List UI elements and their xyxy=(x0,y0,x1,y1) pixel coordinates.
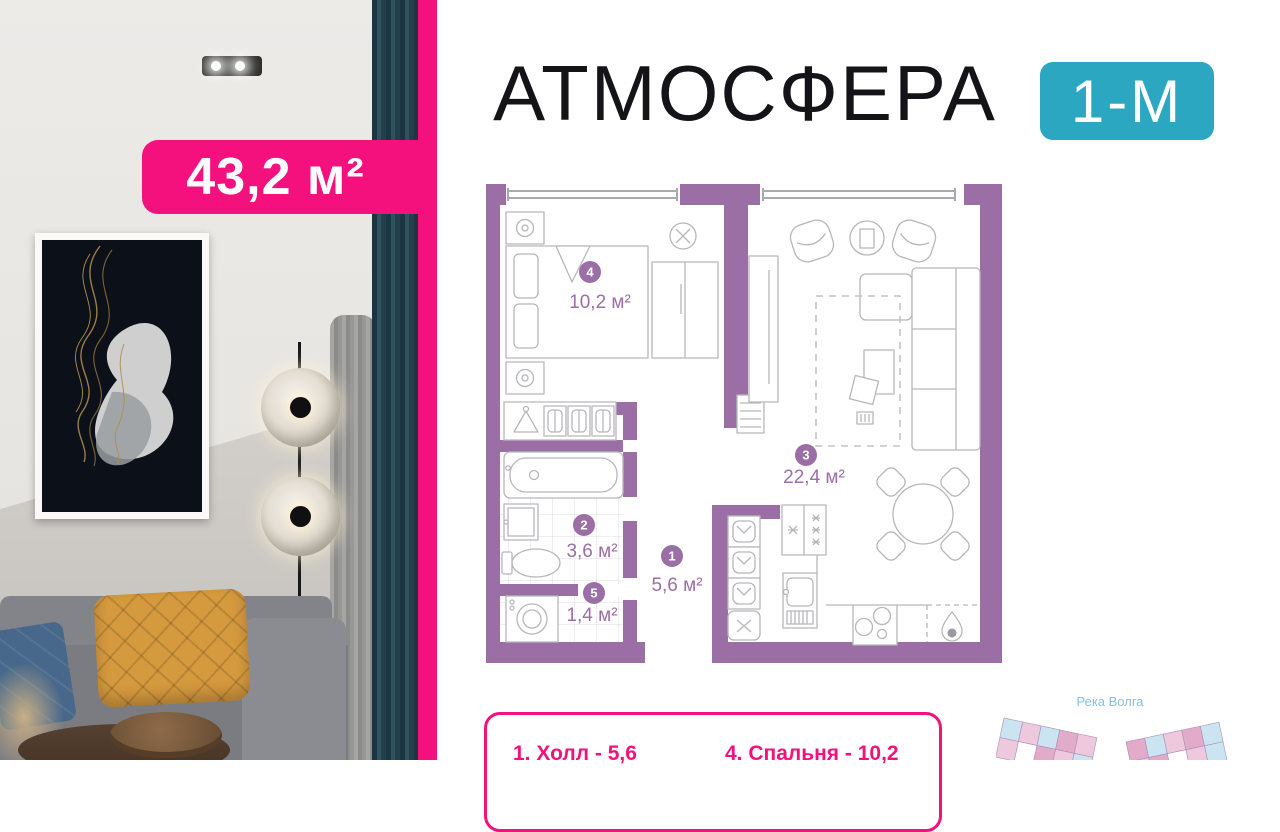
floor-lamp-disc-upper xyxy=(261,368,340,447)
window-bedroom xyxy=(508,188,677,201)
teal-curtain xyxy=(372,0,418,760)
room-2-area: 3,6 м² xyxy=(566,541,617,562)
sofa-armrest xyxy=(242,618,346,760)
window-living xyxy=(763,188,955,201)
room-1-area: 5,6 м² xyxy=(651,575,702,596)
room-3-number: 3 xyxy=(802,448,809,463)
wall-art-frame xyxy=(35,233,209,519)
interior-photo xyxy=(0,0,437,760)
river-label: Река Волга xyxy=(1076,694,1144,709)
site-building-right xyxy=(1126,722,1227,760)
room-5-number: 5 xyxy=(590,586,597,601)
abstract-art xyxy=(42,240,188,498)
legend-item-bedroom: 4. Спальня - 10,2 xyxy=(725,742,899,829)
total-area-badge: 43,2 м² xyxy=(142,140,437,214)
room-1-number: 1 xyxy=(668,549,675,564)
room-3-area: 22,4 м² xyxy=(783,467,845,488)
room-4-number: 4 xyxy=(586,265,594,280)
site-plan: Река Волга xyxy=(996,684,1252,760)
room-legend-box: 1. Холл - 5,6 4. Спальня - 10,2 xyxy=(484,712,942,832)
ceiling-spotlight xyxy=(202,56,262,76)
pink-divider-stripe xyxy=(418,0,437,760)
total-area-value: 43,2 м² xyxy=(186,147,364,207)
unit-type-label: 1-М xyxy=(1071,67,1183,136)
room-2-number: 2 xyxy=(580,518,587,533)
unit-type-badge: 1-М xyxy=(1040,62,1214,140)
floor-plan: 4 10,2 м² 3 22,4 м² 2 3,6 м² 1 5,6 м² 5 … xyxy=(486,184,1002,663)
floor-lamp-disc-lower xyxy=(261,477,340,556)
project-title: АТМОСФЕРА xyxy=(445,48,1045,139)
coffee-table-wood xyxy=(110,712,222,758)
room-5-area: 1,4 м² xyxy=(566,605,617,626)
yellow-pillow xyxy=(93,588,251,708)
room-4-area: 10,2 м² xyxy=(569,292,631,313)
legend-item-hall: 1. Холл - 5,6 xyxy=(513,742,725,829)
site-building-left xyxy=(996,718,1097,760)
